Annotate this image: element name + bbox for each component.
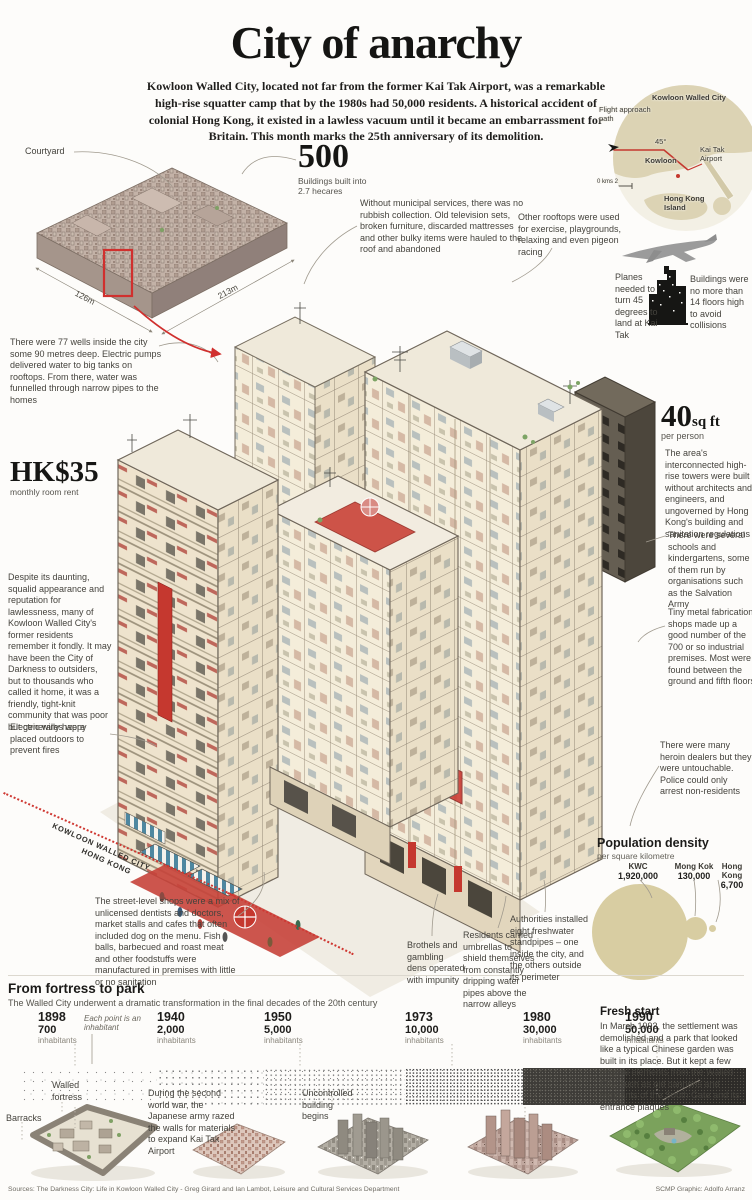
sources-line: Sources: The Darkness City: Life in Kowl… (8, 1186, 438, 1193)
intro-paragraph: Kowloon Walled City, located not far fro… (134, 78, 618, 145)
annotation-shops: The street-level shops were a mix of unl… (95, 896, 241, 988)
illustration-1970s-highrise (458, 1102, 588, 1182)
stat-rent-label: monthly room rent (10, 487, 130, 497)
map-kai-tak-label: Kai Tak Airport (700, 146, 744, 163)
population-bubble-mongkok (684, 917, 707, 940)
annotation-metal-shops: Tiny metal fabrication shops made up a g… (668, 607, 752, 688)
timeline-note: Each point is an inhabitant (84, 1014, 146, 1032)
annotation-brothels: Brothels and gambling dens operated with… (407, 940, 465, 986)
population-bubble-hongkong (709, 925, 716, 932)
annotation-schools: There were several schools and kindergar… (668, 530, 752, 611)
infographic-page: City of anarchy Kowloon Walled City, loc… (0, 0, 752, 1200)
timeline-subtitle: The Walled City underwent a dramatic tra… (8, 998, 488, 1008)
map-hk-island-label: Hong Kong Island (664, 195, 726, 212)
stat-rent: HK$35 monthly room rent (10, 458, 130, 497)
stat-buildings-label: Buildings built into 2.7 hecares (298, 176, 378, 196)
caption-ww2: During the second world war, the Japanes… (148, 1088, 242, 1157)
annotation-towers: The area's interconnected high-rise towe… (665, 448, 752, 540)
stat-rent-value: HK$35 (10, 458, 130, 487)
population-label-kwc: KWC 1,920,000 (604, 862, 672, 881)
dot-strip-1973 (405, 1068, 523, 1105)
population-bubble-kwc (592, 884, 688, 980)
stat-space: 40sq ft per person (661, 400, 751, 442)
illustration-1898-fortress (15, 1093, 165, 1185)
caption-barracks: Barracks (6, 1113, 44, 1125)
annotation-heroin: There were many heroin dealers but they … (660, 740, 752, 798)
annotation-wells: There were 77 wells inside the city some… (10, 337, 162, 406)
map-kowloon-label: Kowloon (645, 157, 695, 166)
credit-line: SCMP Graphic: Adolfo Arranz (600, 1186, 745, 1193)
timeline-point-1940: 1940 2,000 inhabitants (157, 1010, 223, 1045)
annotation-planes: Planes needed to turn 45 degrees to land… (615, 272, 661, 341)
annotation-wires: Electric wires were placed outdoors to p… (10, 722, 110, 757)
map-kwc-label: Kowloon Walled City (652, 94, 726, 103)
population-chart-subtitle: per square kilometre (597, 851, 674, 861)
map-flight-path-label: Flight approach path (599, 106, 651, 123)
timeline-point-1950: 1950 5,000 inhabitants (264, 1010, 330, 1045)
map-scale-label: 0 kms 2 (597, 179, 618, 186)
stat-space-value: 40 (661, 398, 692, 433)
annotation-rubbish: Without municipal services, there was no… (360, 198, 528, 256)
fresh-start-text: In March 1993, the settlement was demoli… (600, 1021, 742, 1113)
map-angle-label: 45° (655, 138, 666, 147)
stat-buildings: 500 Buildings built into 2.7 hecares (298, 140, 408, 196)
stat-buildings-value: 500 (298, 140, 408, 174)
stat-space-label: per person (661, 431, 751, 442)
annotation-rooftops: Other rooftops were used for exercise, p… (518, 212, 632, 258)
annotation-community: Despite its daunting, squalid appearance… (8, 572, 112, 733)
courtyard-label: Courtyard (25, 146, 85, 158)
annotation-max-floors: Buildings were no more than 14 floors hi… (690, 274, 752, 332)
fresh-start-title: Fresh start (600, 1006, 659, 1018)
annotation-standpipes: Authorities installed eight freshwater s… (510, 914, 590, 983)
caption-walled-fortress: Walled fortress (52, 1080, 100, 1103)
page-title: City of anarchy (0, 16, 752, 69)
population-label-hongkong: Hong Kong 6,700 (712, 862, 752, 890)
caption-uncontrolled: Uncontrolled building begins (302, 1088, 362, 1123)
population-chart-title: Population density (597, 836, 709, 850)
stat-space-unit: sq ft (692, 414, 720, 430)
timeline-point-1973: 1973 10,000 inhabitants (405, 1010, 471, 1045)
timeline-title: From fortress to park (8, 981, 145, 996)
timeline-point-1980: 1980 30,000 inhabitants (523, 1010, 589, 1045)
